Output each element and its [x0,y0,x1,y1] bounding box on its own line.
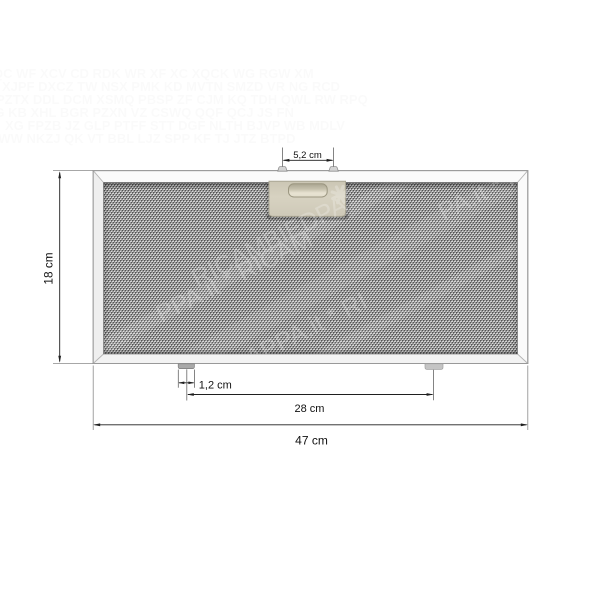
svg-text:47 cm: 47 cm [295,433,328,447]
svg-text:18 cm: 18 cm [42,252,56,284]
svg-text:28 cm: 28 cm [295,403,325,415]
svg-text:5,2 cm: 5,2 cm [293,150,322,161]
svg-text:1,2 cm: 1,2 cm [199,379,232,391]
svg-text:KWW NKZJ QK VT BBL LJZ SPP KF: KWW NKZJ QK VT BBL LJZ SPP KF TJ JTZ BTP… [0,131,295,146]
